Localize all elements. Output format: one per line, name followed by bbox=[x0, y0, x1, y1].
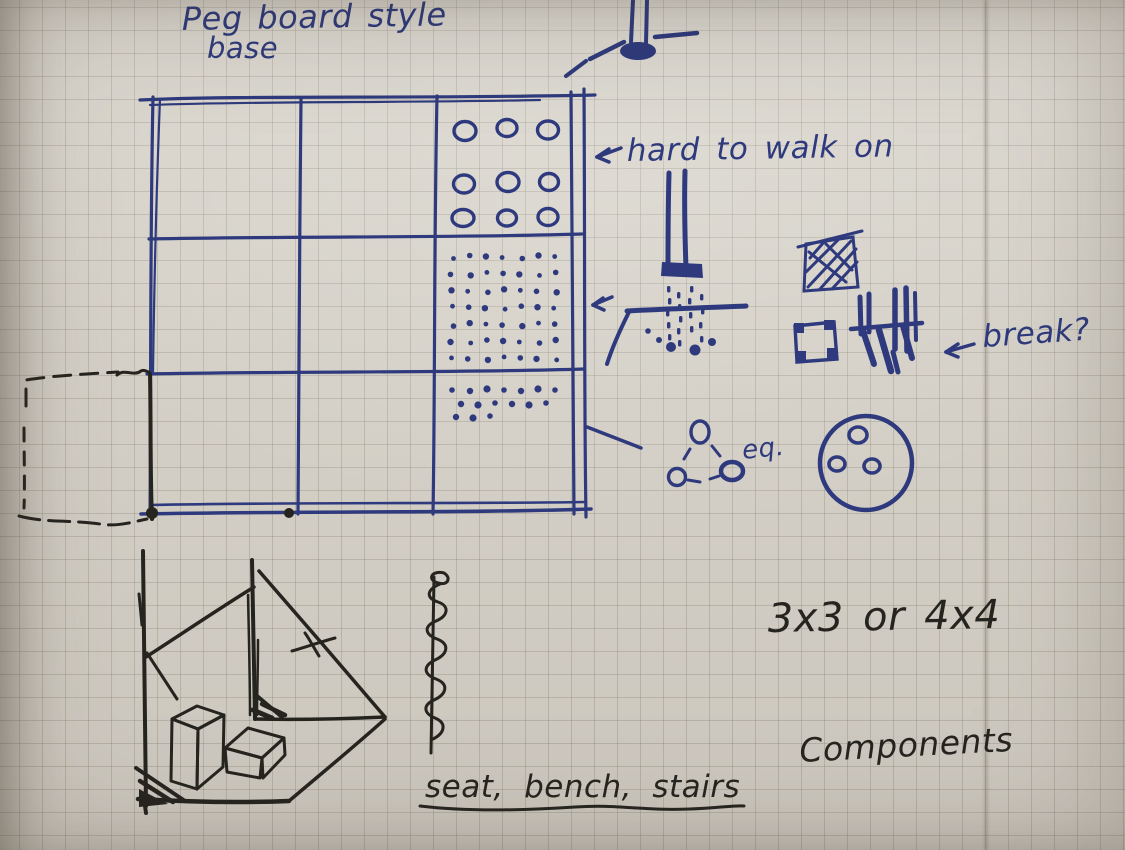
bench-box bbox=[225, 728, 285, 778]
peg-hole-circles bbox=[452, 120, 559, 227]
dashed-grid-extension bbox=[19, 372, 147, 525]
peg-cross-section bbox=[566, 0, 697, 76]
arrow-left-icon bbox=[593, 297, 612, 310]
seat-box bbox=[171, 706, 224, 789]
pointer-line bbox=[587, 427, 641, 448]
grid-black-overdraw bbox=[117, 370, 294, 519]
legs-that-break bbox=[851, 288, 922, 372]
dense-dot-holes bbox=[447, 252, 560, 363]
falling-peg-dots bbox=[645, 286, 716, 356]
annotation-hard-to-walk: hard to walk on bbox=[627, 128, 894, 169]
graph-paper-photo: Peg board style base hard to walk on bre… bbox=[0, 0, 1125, 850]
annotation-eq: eq. bbox=[741, 432, 786, 466]
pegboard-grid-plan bbox=[140, 89, 595, 517]
arrow-left-icon bbox=[946, 344, 974, 357]
sketch-layer: Peg board style base hard to walk on bre… bbox=[0, 0, 1125, 850]
component-list-underline bbox=[420, 806, 744, 810]
annotation-break: break? bbox=[981, 312, 1091, 355]
annotation-grid-size: 3x3 or 4x4 bbox=[767, 592, 1000, 642]
corner-room-perspective bbox=[136, 551, 385, 813]
sketch-title-line2: base bbox=[207, 31, 278, 65]
round-base-three-holes bbox=[820, 416, 912, 510]
spiral-screw bbox=[426, 572, 448, 753]
annotation-components: Components bbox=[798, 720, 1014, 770]
base-plate-corner-holes bbox=[794, 320, 837, 362]
annotation-component-list: seat, bench, stairs bbox=[425, 769, 740, 805]
sparse-dot-holes bbox=[449, 385, 558, 421]
three-peg-triangle bbox=[669, 421, 744, 486]
peg-into-holes bbox=[607, 171, 746, 364]
arrow-left-icon bbox=[597, 148, 621, 162]
hatched-pad bbox=[798, 231, 862, 291]
